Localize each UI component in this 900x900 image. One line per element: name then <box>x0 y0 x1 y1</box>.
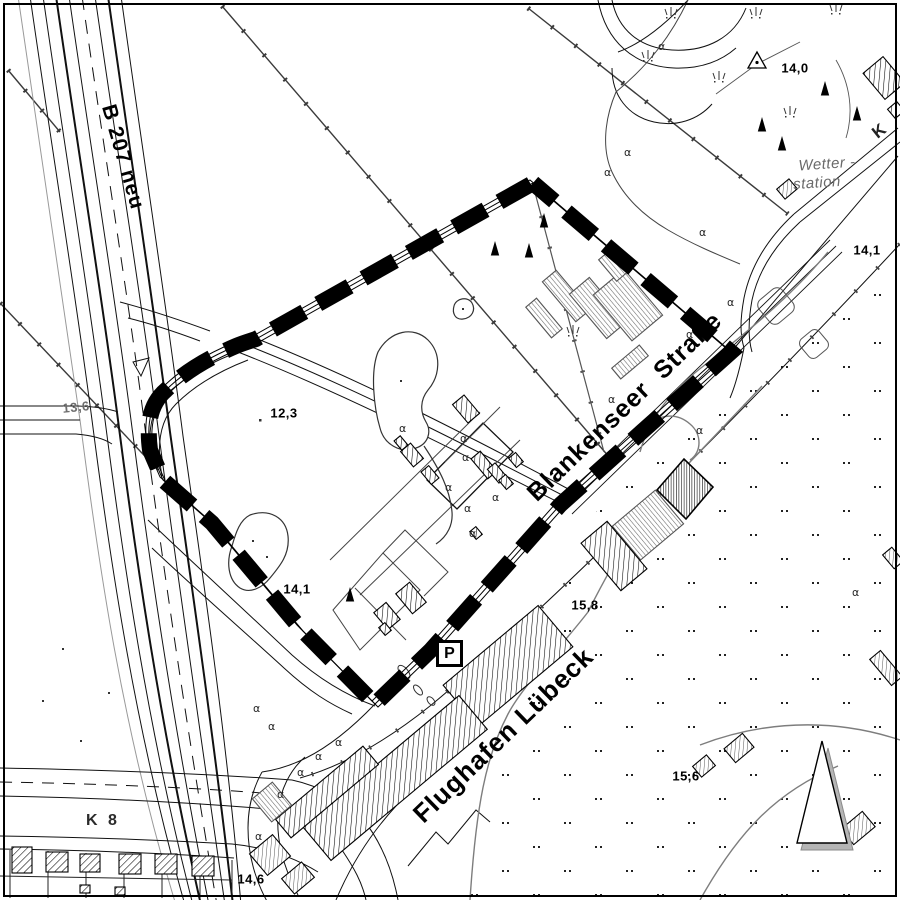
ponds <box>42 299 474 742</box>
svg-text:α: α <box>727 296 734 309</box>
svg-text:α: α <box>852 586 859 599</box>
svg-text:α: α <box>492 491 499 504</box>
svg-text:α: α <box>460 432 467 445</box>
weather-station-label-line2: station <box>793 174 842 192</box>
elevation-label-13-6: 13,6 <box>62 399 91 415</box>
elevation-label-14-6: 14,6 <box>237 873 264 886</box>
road-label-k8: K 8 <box>86 813 120 829</box>
elevation-label-14-1-east: 14,1 <box>853 244 880 257</box>
svg-text:α: α <box>624 146 631 159</box>
svg-text:α: α <box>699 226 706 239</box>
svg-text:α: α <box>462 451 469 464</box>
elevation-label-14-1-center: 14,1 <box>283 583 310 596</box>
svg-text:α: α <box>399 422 406 435</box>
svg-text:α: α <box>464 502 471 515</box>
elevation-label-15-6: 15,6 <box>672 770 699 783</box>
trig-point-icon <box>748 52 766 68</box>
svg-text:α: α <box>604 166 611 179</box>
svg-text:α: α <box>445 481 452 494</box>
svg-text:α: α <box>277 788 284 801</box>
svg-text:α: α <box>268 720 275 733</box>
svg-text:α: α <box>696 424 703 437</box>
svg-text:α: α <box>335 736 342 749</box>
svg-text:α: α <box>315 750 322 763</box>
svg-text:α: α <box>469 527 476 540</box>
parking-icon: P <box>436 640 463 667</box>
weather-station-label-line1: Wetter - <box>798 155 856 174</box>
elevation-label-14-0: 14,0 <box>781 62 808 75</box>
elevation-label-15-8: 15,8 <box>571 599 598 612</box>
svg-text:α: α <box>253 702 260 715</box>
svg-text:α: α <box>255 830 262 843</box>
site-plan-map: ααα ααα ααα ααα ααα ααα ααα ααα <box>0 0 900 900</box>
elevation-label-12-3: 12,3 <box>270 407 297 420</box>
svg-text:α: α <box>297 766 304 779</box>
svg-text:α: α <box>658 40 665 53</box>
